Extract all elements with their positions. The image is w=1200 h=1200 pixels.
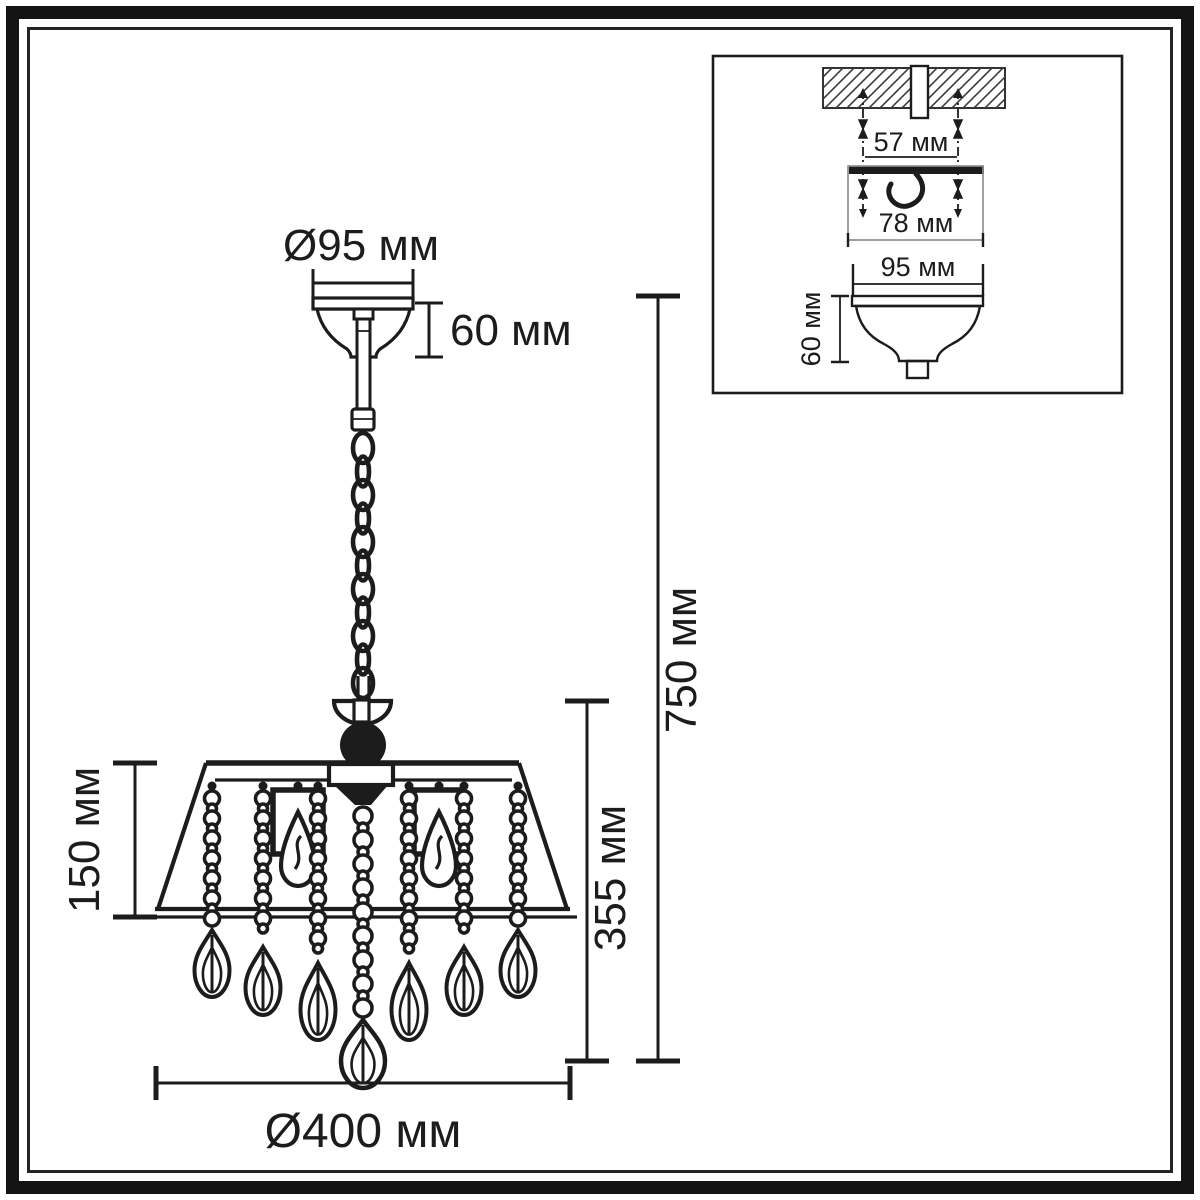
chandelier-dimension-drawing: Ø95 мм 60 мм xyxy=(0,0,1200,1200)
bead xyxy=(205,911,220,926)
mounting-detail-inset: 57 мм 78 мм 95 мм xyxy=(713,56,1122,393)
center-bead-column xyxy=(341,807,385,1088)
label-inset-canopy-diameter: 95 мм xyxy=(881,252,956,282)
dimension-line-canopy-diameter xyxy=(313,269,413,297)
label-canopy-height: 60 мм xyxy=(450,306,572,355)
string-hanger-bead xyxy=(259,782,268,791)
label-bracket-width: 78 мм xyxy=(879,208,954,238)
dimension-overall-height: 750 мм xyxy=(636,296,706,1061)
string-hanger-bead xyxy=(460,782,469,791)
string-hanger-bead xyxy=(405,782,414,791)
label-shade-height: 150 мм xyxy=(60,767,109,913)
bead xyxy=(511,911,526,926)
dimension-shade-height: 150 мм xyxy=(60,763,157,917)
diagram-page: Ø95 мм 60 мм xyxy=(0,0,1200,1200)
string-hanger-bead xyxy=(514,782,523,791)
label-inset-canopy-height: 60 мм xyxy=(796,292,826,367)
dimension-screw-spacing: 57 мм xyxy=(865,127,957,157)
suspension-chain xyxy=(353,433,373,698)
bead xyxy=(460,924,469,933)
bead xyxy=(314,944,323,953)
bowl-finial xyxy=(334,676,391,724)
string-hanger-bead xyxy=(208,782,217,791)
bead xyxy=(259,924,268,933)
label-body-height: 355 мм xyxy=(586,805,635,951)
dimension-line-canopy-height xyxy=(415,303,443,357)
canopy xyxy=(313,298,413,430)
label-overall-height: 750 мм xyxy=(657,587,706,733)
main-view: Ø95 мм 60 мм xyxy=(60,221,706,1158)
label-canopy-diameter: Ø95 мм xyxy=(283,221,439,270)
bead xyxy=(354,999,372,1017)
string-hanger-bead xyxy=(314,782,323,791)
dimension-body-height: 355 мм xyxy=(565,701,635,1061)
label-screw-spacing: 57 мм xyxy=(874,127,949,157)
label-body-diameter: Ø400 мм xyxy=(265,1105,462,1158)
bead xyxy=(405,944,414,953)
